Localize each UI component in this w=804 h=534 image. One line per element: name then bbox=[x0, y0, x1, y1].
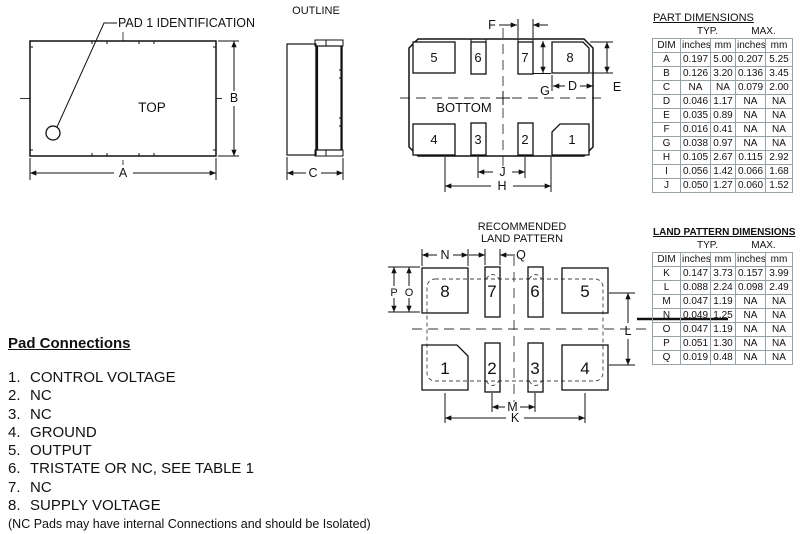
dim-label-g: G bbox=[540, 84, 550, 98]
land-pattern-group-headers: TYP. MAX. bbox=[652, 240, 793, 252]
table-cell: 0.197 bbox=[681, 53, 711, 67]
dim-f-lines bbox=[499, 19, 548, 38]
pad-number: 4 bbox=[580, 359, 589, 378]
table-cell: 0.136 bbox=[736, 67, 766, 81]
outline-view-label: OUTLINE bbox=[292, 5, 340, 17]
table-cell: 0.105 bbox=[681, 151, 711, 165]
table-cell: mm bbox=[766, 253, 793, 267]
table-row: J0.0501.270.0601.52 bbox=[653, 179, 793, 193]
table-cell: L bbox=[653, 281, 681, 295]
table-row: N0.0491.25NANA bbox=[653, 309, 793, 323]
table-cell: 0.079 bbox=[736, 81, 766, 95]
table-cell: A bbox=[653, 53, 681, 67]
table-cell: 1.17 bbox=[711, 95, 736, 109]
table-cell: 0.046 bbox=[681, 95, 711, 109]
bottom-view-label: BOTTOM bbox=[436, 100, 491, 115]
land-pattern-centerlines bbox=[412, 256, 650, 402]
pad-number: 1 bbox=[440, 359, 449, 378]
bottom-view-drawing bbox=[400, 19, 613, 192]
table-cell: D bbox=[653, 95, 681, 109]
dim-label-d: D bbox=[568, 79, 577, 93]
table-cell: 0.115 bbox=[736, 151, 766, 165]
table-cell: DIM bbox=[653, 253, 681, 267]
table-cell: 0.48 bbox=[711, 351, 736, 365]
table-cell: N bbox=[653, 309, 681, 323]
land-pattern-title-line2: LAND PATTERN bbox=[481, 233, 563, 245]
table-row: L0.0882.240.0982.49 bbox=[653, 281, 793, 295]
dim-label-q: Q bbox=[516, 248, 526, 262]
dim-label-c: C bbox=[308, 166, 317, 180]
dim-label-l: L bbox=[625, 324, 632, 338]
dim-label-b: B bbox=[230, 91, 238, 105]
typ-group-header: TYP. bbox=[680, 240, 735, 252]
table-cell: 0.207 bbox=[736, 53, 766, 67]
table-cell: 0.147 bbox=[681, 267, 711, 281]
pad-number: 5 bbox=[580, 282, 589, 301]
table-cell: NA bbox=[736, 295, 766, 309]
pad-connection-item: 5. OUTPUT bbox=[8, 442, 428, 460]
pad-connection-item: 1. CONTROL VOLTAGE bbox=[8, 369, 428, 387]
table-cell: B bbox=[653, 67, 681, 81]
pad-number: 3 bbox=[530, 359, 539, 378]
pad-connection-number: 1. bbox=[8, 369, 30, 387]
table-cell: NA bbox=[736, 95, 766, 109]
table-cell: NA bbox=[766, 323, 793, 337]
pad-number: 3 bbox=[474, 132, 481, 147]
pad-number: 8 bbox=[566, 50, 573, 65]
max-group-header: MAX. bbox=[735, 26, 792, 38]
table-cell: inches bbox=[736, 253, 766, 267]
table-cell: 0.97 bbox=[711, 137, 736, 151]
table-cell: NA bbox=[736, 123, 766, 137]
table-cell: C bbox=[653, 81, 681, 95]
table-cell: NA bbox=[736, 323, 766, 337]
table-row: M0.0471.19NANA bbox=[653, 295, 793, 309]
pad-connection-number: 7. bbox=[8, 479, 30, 497]
table-cell: 5.00 bbox=[711, 53, 736, 67]
table-cell: NA bbox=[711, 81, 736, 95]
table-cell: 1.27 bbox=[711, 179, 736, 193]
table-row: A0.1975.000.2075.25 bbox=[653, 53, 793, 67]
table-row: E0.0350.89NANA bbox=[653, 109, 793, 123]
pad-connection-item: 6. TRISTATE OR NC, SEE TABLE 1 bbox=[8, 460, 428, 478]
table-cell: NA bbox=[736, 351, 766, 365]
outline-base bbox=[316, 46, 342, 150]
part-dimensions-grid: DIMinchesmminchesmmA0.1975.000.2075.25B0… bbox=[652, 38, 793, 193]
table-cell: 0.047 bbox=[681, 295, 711, 309]
pad-connection-label: GROUND bbox=[30, 424, 97, 442]
pad-number: 7 bbox=[487, 282, 496, 301]
pad-connection-number: 6. bbox=[8, 460, 30, 478]
table-cell: M bbox=[653, 295, 681, 309]
table-cell: 0.051 bbox=[681, 337, 711, 351]
pad-number: 6 bbox=[474, 50, 481, 65]
table-cell: H bbox=[653, 151, 681, 165]
table-cell: 0.157 bbox=[736, 267, 766, 281]
table-cell: 0.41 bbox=[711, 123, 736, 137]
table-cell: NA bbox=[766, 309, 793, 323]
table-cell: NA bbox=[766, 337, 793, 351]
table-cell: NA bbox=[736, 109, 766, 123]
table-row: P0.0511.30NANA bbox=[653, 337, 793, 351]
pad-connection-item: 8. SUPPLY VOLTAGE bbox=[8, 497, 428, 515]
table-row: CNANA0.0792.00 bbox=[653, 81, 793, 95]
table-cell: NA bbox=[766, 109, 793, 123]
table-cell: DIM bbox=[653, 39, 681, 53]
table-cell: 1.42 bbox=[711, 165, 736, 179]
table-cell: 2.67 bbox=[711, 151, 736, 165]
dim-label-j: J bbox=[499, 165, 505, 179]
table-cell: mm bbox=[766, 39, 793, 53]
table-cell: G bbox=[653, 137, 681, 151]
group-header-spacer bbox=[652, 240, 680, 252]
table-row: O0.0471.19NANA bbox=[653, 323, 793, 337]
pad-connection-number: 2. bbox=[8, 387, 30, 405]
table-cell: 1.68 bbox=[766, 165, 793, 179]
table-cell: F bbox=[653, 123, 681, 137]
pad-connection-number: 5. bbox=[8, 442, 30, 460]
table-cell: 0.047 bbox=[681, 323, 711, 337]
table-cell: O bbox=[653, 323, 681, 337]
pad-connection-number: 8. bbox=[8, 497, 30, 515]
pad-number: 8 bbox=[440, 282, 449, 301]
table-cell: 2.92 bbox=[766, 151, 793, 165]
pad-connection-item: 3. NC bbox=[8, 406, 428, 424]
table-cell: inches bbox=[736, 39, 766, 53]
table-cell: 0.038 bbox=[681, 137, 711, 151]
datasheet-package-drawing-page: PAD 1 IDENTIFICATION TOP B A OUTLINE C bbox=[0, 0, 804, 534]
package-outline-overlay bbox=[427, 279, 603, 381]
pad1-identification-callout: PAD 1 IDENTIFICATION bbox=[118, 16, 255, 30]
table-row: F0.0160.41NANA bbox=[653, 123, 793, 137]
table-cell: NA bbox=[766, 351, 793, 365]
land-pattern-dimensions-title: LAND PATTERN DIMENSIONS bbox=[653, 227, 793, 238]
land-pattern-title-line1: RECOMMENDED bbox=[478, 221, 567, 233]
table-row: I0.0561.420.0661.68 bbox=[653, 165, 793, 179]
dim-label-p: P bbox=[390, 287, 397, 299]
pad-number: 2 bbox=[521, 132, 528, 147]
top-view-label: TOP bbox=[138, 100, 166, 115]
dim-g-lines bbox=[533, 41, 551, 74]
table-cell: NA bbox=[766, 95, 793, 109]
dim-label-f: F bbox=[488, 18, 496, 32]
pad-number: 6 bbox=[530, 282, 539, 301]
table-cell: NA bbox=[766, 123, 793, 137]
table-cell: NA bbox=[766, 137, 793, 151]
pad-connection-label: OUTPUT bbox=[30, 442, 92, 460]
dim-label-e: E bbox=[613, 80, 621, 94]
part-dimensions-table: PART DIMENSIONS TYP. MAX. DIMinchesmminc… bbox=[652, 12, 793, 193]
table-cell: NA bbox=[766, 295, 793, 309]
table-cell: E bbox=[653, 109, 681, 123]
pad-connection-item: 4. GROUND bbox=[8, 424, 428, 442]
table-cell: 2.49 bbox=[766, 281, 793, 295]
table-cell: 0.050 bbox=[681, 179, 711, 193]
table-cell: 1.25 bbox=[711, 309, 736, 323]
pad-connection-label: SUPPLY VOLTAGE bbox=[30, 497, 161, 515]
table-cell: Q bbox=[653, 351, 681, 365]
pad-connection-label: NC bbox=[30, 387, 52, 405]
table-cell: P bbox=[653, 337, 681, 351]
table-cell: 0.098 bbox=[736, 281, 766, 295]
table-cell: NA bbox=[681, 81, 711, 95]
pad-connection-label: CONTROL VOLTAGE bbox=[30, 369, 176, 387]
table-cell: 0.088 bbox=[681, 281, 711, 295]
table-cell: NA bbox=[736, 309, 766, 323]
table-row: K0.1473.730.1573.99 bbox=[653, 267, 793, 281]
outline-view-drawing bbox=[287, 40, 343, 180]
part-dimensions-group-headers: TYP. MAX. bbox=[652, 26, 793, 38]
group-header-spacer bbox=[652, 26, 680, 38]
pad-connections-list: 1. CONTROL VOLTAGE 2. NC 3. NC 4. GROUND… bbox=[8, 369, 428, 515]
dim-label-h: H bbox=[497, 179, 506, 193]
table-cell: NA bbox=[736, 337, 766, 351]
land-pattern-dimensions-table: LAND PATTERN DIMENSIONS TYP. MAX. DIMinc… bbox=[652, 227, 793, 365]
part-dimensions-title: PART DIMENSIONS bbox=[653, 12, 793, 24]
pad-number: 1 bbox=[568, 132, 575, 147]
pad-connection-item: 7. NC bbox=[8, 479, 428, 497]
table-cell: inches bbox=[681, 39, 711, 53]
max-group-header: MAX. bbox=[735, 240, 792, 252]
pad-number: 4 bbox=[430, 132, 437, 147]
pad-number: 7 bbox=[521, 50, 528, 65]
pad-connection-item: 2. NC bbox=[8, 387, 428, 405]
table-cell: 3.20 bbox=[711, 67, 736, 81]
bottom-view-center-cross bbox=[496, 91, 510, 105]
table-cell: 2.24 bbox=[711, 281, 736, 295]
table-cell: 2.00 bbox=[766, 81, 793, 95]
table-cell: 0.035 bbox=[681, 109, 711, 123]
pad-connection-number: 4. bbox=[8, 424, 30, 442]
table-cell: 0.019 bbox=[681, 351, 711, 365]
pad-connections-title: Pad Connections bbox=[8, 335, 428, 352]
top-view-drawing bbox=[20, 23, 239, 180]
dim-label-o: O bbox=[405, 287, 414, 299]
table-cell: 0.049 bbox=[681, 309, 711, 323]
table-row: B0.1263.200.1363.45 bbox=[653, 67, 793, 81]
table-cell: 0.126 bbox=[681, 67, 711, 81]
typ-group-header: TYP. bbox=[680, 26, 735, 38]
table-cell: 0.89 bbox=[711, 109, 736, 123]
table-cell: 0.056 bbox=[681, 165, 711, 179]
table-row: H0.1052.670.1152.92 bbox=[653, 151, 793, 165]
table-cell: K bbox=[653, 267, 681, 281]
table-cell: 3.99 bbox=[766, 267, 793, 281]
dim-label-n: N bbox=[440, 248, 449, 262]
table-cell: 0.066 bbox=[736, 165, 766, 179]
dim-label-k: K bbox=[511, 411, 520, 425]
pad-connection-label: TRISTATE OR NC, SEE TABLE 1 bbox=[30, 460, 254, 478]
pad-number: 2 bbox=[487, 359, 496, 378]
table-cell: 0.060 bbox=[736, 179, 766, 193]
land-pattern-dimensions-grid: DIMinchesmminchesmmK0.1473.730.1573.99L0… bbox=[652, 252, 793, 365]
dim-label-a: A bbox=[119, 166, 128, 180]
table-cell: I bbox=[653, 165, 681, 179]
table-cell: NA bbox=[736, 137, 766, 151]
table-header-row: DIMinchesmminchesmm bbox=[653, 253, 793, 267]
table-row: Q0.0190.48NANA bbox=[653, 351, 793, 365]
table-cell: 5.25 bbox=[766, 53, 793, 67]
table-cell: 1.30 bbox=[711, 337, 736, 351]
table-cell: 1.19 bbox=[711, 323, 736, 337]
pad-number: 5 bbox=[430, 50, 437, 65]
table-cell: 0.016 bbox=[681, 123, 711, 137]
outline-lid bbox=[287, 44, 316, 155]
pad-connections-section: Pad Connections 1. CONTROL VOLTAGE 2. NC… bbox=[8, 335, 428, 531]
pad-connection-label: NC bbox=[30, 406, 52, 424]
dim-q-lines bbox=[469, 249, 515, 265]
pad-connections-note: (NC Pads may have internal Connections a… bbox=[8, 517, 428, 531]
pad-connection-label: NC bbox=[30, 479, 52, 497]
table-cell: 1.52 bbox=[766, 179, 793, 193]
pad1-identification-mark bbox=[46, 126, 60, 140]
table-cell: J bbox=[653, 179, 681, 193]
table-row: D0.0461.17NANA bbox=[653, 95, 793, 109]
table-cell: inches bbox=[681, 253, 711, 267]
table-header-row: DIMinchesmminchesmm bbox=[653, 39, 793, 53]
table-cell: mm bbox=[711, 39, 736, 53]
table-cell: mm bbox=[711, 253, 736, 267]
pad-connection-number: 3. bbox=[8, 406, 30, 424]
table-row: G0.0380.97NANA bbox=[653, 137, 793, 151]
table-cell: 3.45 bbox=[766, 67, 793, 81]
table-cell: 3.73 bbox=[711, 267, 736, 281]
table-cell: 1.19 bbox=[711, 295, 736, 309]
